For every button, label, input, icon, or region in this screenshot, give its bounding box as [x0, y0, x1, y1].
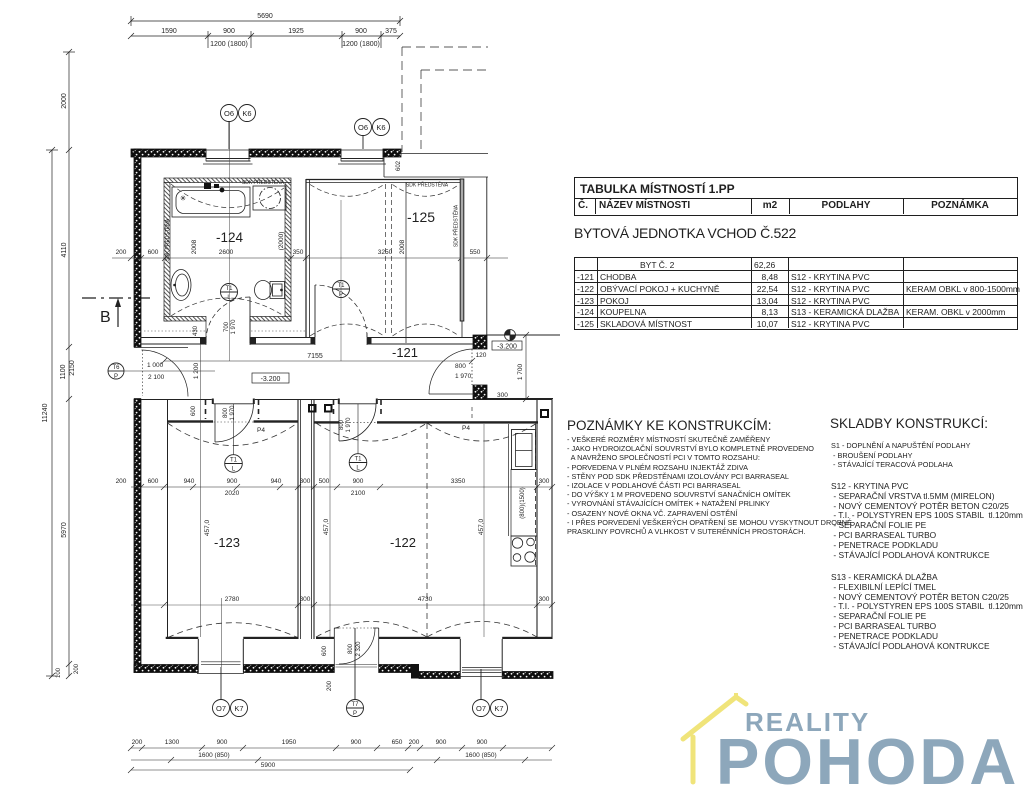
svg-text:800: 800	[339, 419, 345, 430]
svg-text:K6: K6	[242, 109, 251, 118]
svg-text:(800)(1500): (800)(1500)	[520, 487, 526, 518]
svg-text:375: 375	[385, 28, 397, 35]
svg-text:SDK PŘEDSTĚNA: SDK PŘEDSTĚNA	[452, 204, 460, 247]
svg-text:940: 940	[271, 478, 282, 485]
svg-text:K6: K6	[376, 123, 385, 132]
svg-text:430: 430	[193, 325, 199, 336]
svg-text:L: L	[232, 467, 236, 473]
svg-text:4730: 4730	[418, 596, 433, 603]
svg-text:1 970: 1 970	[231, 319, 237, 335]
svg-text:-125: -125	[407, 209, 435, 225]
svg-text:2020: 2020	[225, 490, 240, 497]
svg-text:300: 300	[300, 596, 311, 603]
svg-text:O7: O7	[476, 704, 486, 713]
svg-text:500: 500	[319, 478, 330, 485]
svg-text:2 320: 2 320	[356, 641, 362, 657]
svg-text:650: 650	[392, 739, 403, 746]
svg-text:2150: 2150	[69, 360, 76, 376]
svg-text:(2000): (2000)	[278, 232, 285, 251]
svg-text:457,0: 457,0	[204, 519, 211, 536]
svg-text:200: 200	[327, 680, 333, 691]
svg-text:1925: 1925	[288, 28, 304, 35]
svg-text:800: 800	[223, 407, 229, 418]
svg-text:O6: O6	[224, 109, 234, 118]
svg-text:T1: T1	[230, 458, 238, 464]
svg-text:300: 300	[497, 392, 508, 399]
svg-text:900: 900	[353, 478, 364, 485]
svg-text:2 100: 2 100	[148, 374, 165, 381]
svg-text:800: 800	[348, 643, 354, 654]
svg-text:T1: T1	[337, 283, 345, 289]
svg-text:120: 120	[476, 352, 487, 359]
svg-text:2000: 2000	[61, 93, 68, 109]
svg-text:1600 (850): 1600 (850)	[198, 752, 229, 759]
svg-text:1600 (850): 1600 (850)	[465, 752, 496, 759]
svg-text:900: 900	[227, 478, 238, 485]
svg-text:600: 600	[191, 405, 197, 416]
svg-text:300: 300	[539, 596, 550, 603]
svg-text:100: 100	[56, 667, 62, 678]
svg-text:11240: 11240	[42, 403, 49, 422]
svg-text:1590: 1590	[161, 28, 177, 35]
svg-text:1200 (1800): 1200 (1800)	[342, 41, 380, 48]
svg-text:350: 350	[293, 249, 304, 256]
svg-text:200: 200	[409, 739, 420, 746]
svg-text:200: 200	[116, 249, 127, 256]
svg-text:SDK PŘEDSTĚNA: SDK PŘEDSTĚNA	[163, 218, 171, 261]
svg-text:K7: K7	[494, 704, 503, 713]
svg-text:1200 (1800): 1200 (1800)	[210, 41, 248, 48]
svg-text:200: 200	[132, 739, 143, 746]
svg-text:900: 900	[223, 28, 235, 35]
svg-text:1100: 1100	[60, 364, 67, 379]
svg-text:B: B	[100, 309, 111, 326]
svg-text:1 970: 1 970	[230, 405, 236, 421]
svg-text:K7: K7	[234, 704, 243, 713]
svg-text:800: 800	[455, 363, 466, 370]
svg-text:1 970: 1 970	[455, 373, 472, 380]
svg-text:900: 900	[217, 739, 228, 746]
svg-text:900: 900	[355, 28, 367, 35]
svg-text:550: 550	[470, 249, 481, 256]
svg-text:SDK PŘEDSTĚNA: SDK PŘEDSTĚNA	[406, 181, 449, 189]
svg-text:L: L	[356, 466, 360, 472]
svg-text:3350: 3350	[451, 478, 466, 485]
svg-text:7155: 7155	[307, 353, 323, 360]
svg-text:T7: T7	[351, 702, 359, 708]
svg-text:2008: 2008	[399, 239, 406, 254]
svg-text:600: 600	[148, 478, 159, 485]
svg-text:200: 200	[74, 663, 80, 674]
svg-text:-122: -122	[390, 535, 416, 550]
svg-text:O7: O7	[216, 704, 226, 713]
svg-text:O6: O6	[358, 123, 368, 132]
svg-text:200: 200	[116, 478, 127, 485]
svg-text:1 700: 1 700	[517, 363, 524, 380]
svg-text:5690: 5690	[257, 13, 273, 20]
svg-text:1950: 1950	[282, 739, 297, 746]
svg-text:5970: 5970	[61, 522, 68, 538]
svg-text:2008: 2008	[191, 239, 198, 254]
svg-text:4110: 4110	[61, 242, 68, 257]
svg-text:457,0: 457,0	[323, 518, 330, 535]
svg-text:900: 900	[436, 739, 447, 746]
svg-text:940: 940	[184, 478, 195, 485]
svg-text:300: 300	[300, 478, 311, 485]
svg-text:2600: 2600	[219, 249, 234, 256]
svg-text:T1: T1	[354, 457, 362, 463]
svg-text:1300: 1300	[165, 739, 180, 746]
svg-text:600: 600	[148, 249, 159, 256]
svg-text:2780: 2780	[225, 596, 240, 603]
svg-text:-121: -121	[392, 345, 418, 360]
svg-text:700: 700	[224, 321, 230, 332]
svg-text:P4: P4	[257, 427, 265, 434]
svg-text:SDK PŘEDSTĚNA: SDK PŘEDSTĚNA	[242, 178, 285, 186]
svg-text:5900: 5900	[261, 762, 276, 769]
svg-text:900: 900	[351, 739, 362, 746]
svg-text:P: P	[353, 711, 357, 717]
svg-text:-124: -124	[216, 230, 244, 245]
svg-text:P: P	[114, 374, 118, 380]
svg-text:-3.200: -3.200	[497, 344, 517, 351]
svg-text:1 970: 1 970	[346, 417, 352, 433]
svg-text:602: 602	[396, 160, 402, 171]
svg-text:T6: T6	[112, 365, 120, 371]
svg-text:900: 900	[477, 739, 488, 746]
svg-text:2100: 2100	[351, 490, 366, 497]
svg-text:600: 600	[322, 645, 328, 656]
svg-text:P4: P4	[462, 425, 470, 432]
svg-text:300: 300	[539, 478, 550, 485]
svg-text:-3.200: -3.200	[261, 376, 281, 383]
svg-text:-123: -123	[214, 535, 240, 550]
svg-text:1 000: 1 000	[147, 362, 164, 369]
